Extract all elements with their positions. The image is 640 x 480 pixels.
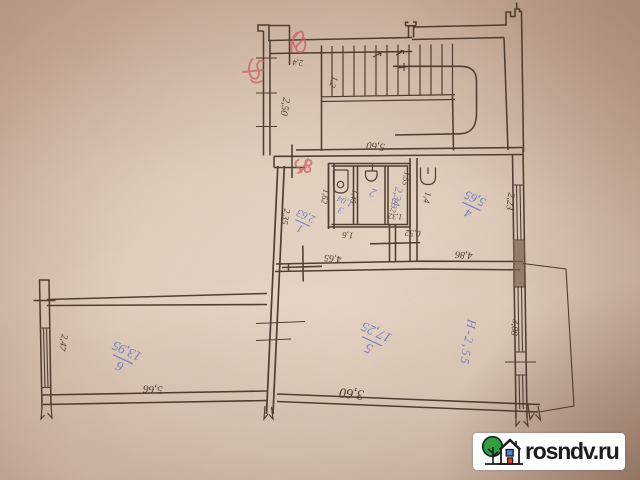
svg-text:1,6: 1,6 bbox=[341, 230, 353, 241]
svg-text:1,4: 1,4 bbox=[421, 191, 433, 204]
svg-text:1,32: 1,32 bbox=[388, 212, 403, 222]
svg-text:3,60: 3,60 bbox=[339, 384, 366, 402]
svg-text:4,86: 4,86 bbox=[455, 249, 473, 261]
svg-text:4,65: 4,65 bbox=[324, 252, 342, 264]
svg-text:0,52: 0,52 bbox=[404, 228, 421, 239]
svg-text:5,66: 5,66 bbox=[142, 382, 163, 395]
svg-text:2,4: 2,4 bbox=[291, 58, 303, 69]
svg-text:2,23: 2,23 bbox=[503, 192, 516, 211]
